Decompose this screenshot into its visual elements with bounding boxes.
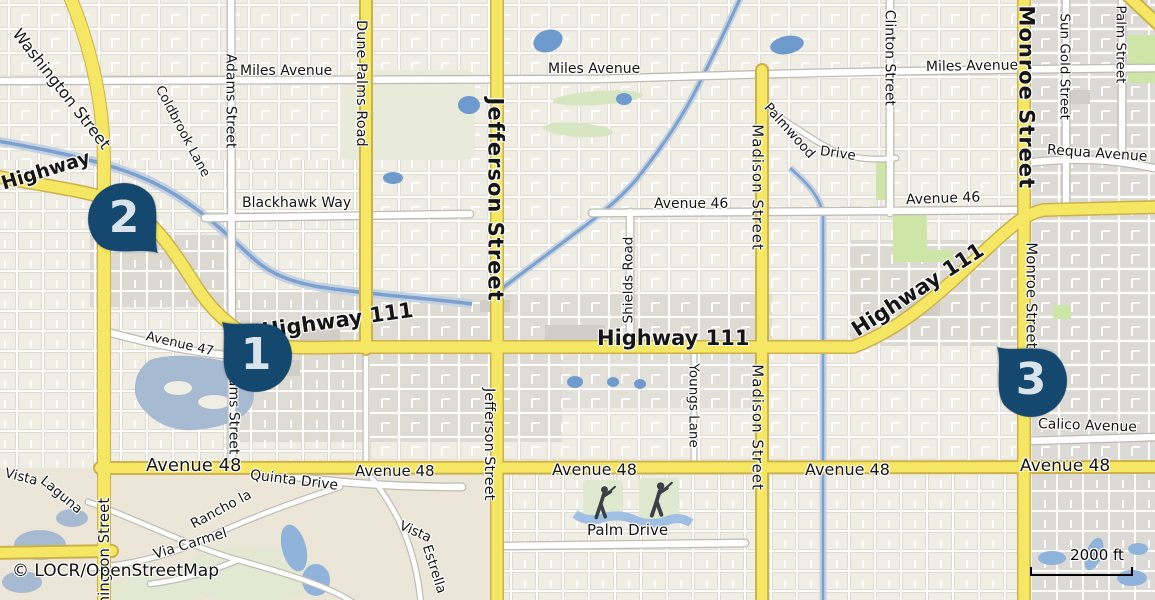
scale-control: 2000 ft <box>1030 546 1134 576</box>
marker-number: 2 <box>80 189 168 247</box>
marker-number: 3 <box>987 351 1075 409</box>
map-marker-3[interactable]: 3 <box>987 341 1075 429</box>
map-marker-1[interactable]: 1 <box>212 316 300 404</box>
marker-number: 1 <box>212 326 300 384</box>
map-marker-2[interactable]: 2 <box>80 179 168 267</box>
map-viewport[interactable]: Washington StreetWashington StreetAdams … <box>0 0 1155 600</box>
scale-bar <box>1030 567 1133 576</box>
map-attribution: © LOCR/OpenStreetMap <box>12 561 219 581</box>
map-canvas <box>0 0 1155 600</box>
scale-label: 2000 ft <box>1030 546 1134 564</box>
